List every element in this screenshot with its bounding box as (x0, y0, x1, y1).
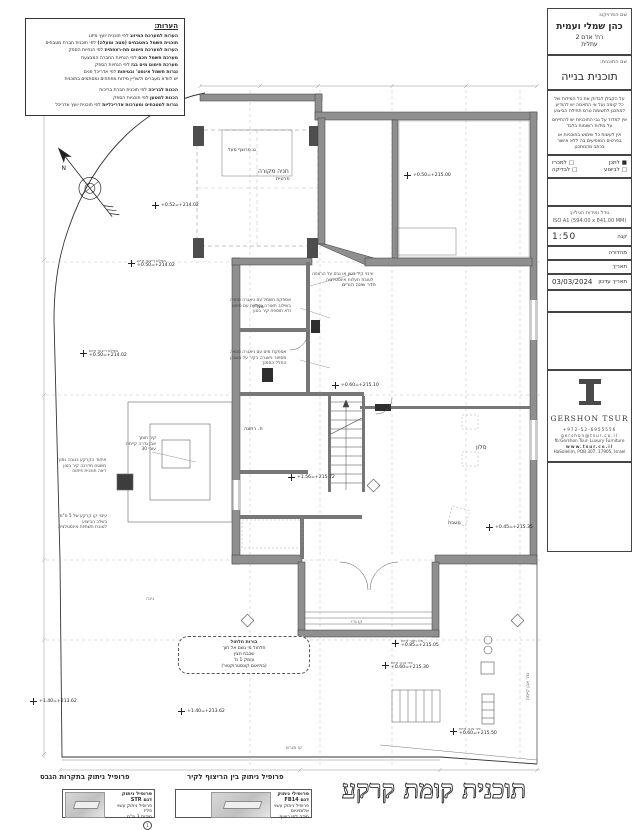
sheet-size-value: ISO A1 (594.00 x 841.00 MM) (552, 218, 627, 224)
sheet-title-text: תוכנית קומת קרקע (342, 775, 526, 804)
elevation-marker: +1.56=+215.72 (288, 474, 335, 481)
elevation-marker: +0.60=+215.10 (332, 382, 379, 389)
level-symbol-icon (392, 640, 399, 647)
updated-value: 03/03/2024 (552, 278, 592, 286)
facebook-line: fb:Gershon Tsur- Luxury Furniture (550, 438, 629, 444)
carport (193, 126, 320, 258)
north-arrow: N (48, 141, 122, 227)
disclaimer-2: אין למדוד על גבי התוכניות יש להתייחס על … (552, 118, 627, 130)
note-line: הערות למערכת חימום תת-רצפתית לפי הנחיות … (32, 47, 178, 54)
notes-title: הערות: (32, 22, 178, 30)
level-symbol-icon (382, 662, 389, 669)
checkbox-icon: □ (572, 167, 577, 173)
disclaimer-box: על הקבלן לבדוק את כל המידות של כל קומה ו… (547, 90, 632, 155)
sheet-size-box: גודל ומידות הגיליון: ISO A1 (594.00 x 84… (547, 206, 632, 228)
level-symbol-icon (128, 260, 135, 267)
room-label-carport-2: פרטית (276, 176, 290, 182)
project-info-box: שם הפרויקט: כהן שמלי ועמית רח' אדם 2 עתל… (547, 8, 632, 55)
checkbox-plan[interactable]: ■לתכן (609, 160, 627, 166)
level-symbol-icon (152, 202, 159, 209)
level-symbol-icon (80, 350, 87, 357)
sheet-size-label: גודל ומידות הגיליון: (552, 210, 627, 216)
checkbox-execution[interactable]: □לביצוע (604, 167, 627, 173)
planter-structure (117, 402, 232, 522)
room-label-garden: גינה (146, 596, 154, 602)
note-line: נגרות חשמל אינסט' ובטיחות לפי אדריכל פני… (32, 69, 178, 76)
elevation-marker: מפלס ריצוף קיים+0.50=+214.02 (128, 258, 175, 268)
detail-title-left: פרופיל ניתוק בתקרות הגבס (40, 773, 130, 781)
elevation-marker: +0.52=+214.02 (152, 202, 199, 209)
profile-photo (211, 792, 271, 818)
annotation: אספקת מים עם ניאגרה סמויהמסתור ניאגרה בק… (230, 350, 286, 367)
plan-name-box: שם התוכנית: תוכנית בנייה (547, 55, 632, 90)
entry-steps (305, 612, 432, 624)
elevation-marker: +1.40=+213.62 (178, 708, 225, 715)
level-symbol-icon (30, 698, 37, 705)
label-fence-line: קו גדר (350, 620, 362, 625)
postal-address: HaSolelim, POB 307, 17905, Israel (550, 449, 629, 455)
checkbox-tender[interactable]: □למכרז (552, 160, 574, 166)
scale-value: 1:50 (552, 232, 576, 242)
elevation-marker: פני גינה קיים+0.60=+215.50 (450, 726, 497, 736)
level-symbol-icon (178, 708, 185, 715)
checkbox-icon: ■ (622, 160, 627, 166)
elevation-marker: מפלס ריצוף קיים+0.50=+214.02 (80, 348, 127, 358)
elevation-marker: +0.50=+215.00 (404, 172, 451, 179)
notes-box: הערות: הערות למערכת המיזוג לפי תוכנית יו… (25, 18, 185, 116)
logo-box: GERSHON TSUR +972-52-6955556 gershon@tsu… (547, 370, 632, 462)
note-line: הערות למערכת המיזוג לפי תוכנית יועץ מיזו… (32, 33, 178, 40)
annotation: איחוד הקרקע בגובה נמוךמשטח מדרגה קיר בטו… (58, 458, 106, 475)
label-lot-line: קו מגרש (286, 746, 302, 751)
scale-label: קנה (617, 234, 627, 240)
patio-inner-line (399, 121, 529, 257)
plan-label: שם התוכנית: (552, 59, 627, 65)
elevation-marker: פני חצר קיים+0.85=+215.05 (392, 638, 439, 648)
note-line: הכנות לבריכה לפי תוכנית חברת בריכות (32, 87, 178, 94)
drainage-note-bubble: בורות חלחול חלחול מי גשם אל תוך שכבת חצץ… (178, 636, 310, 674)
note-line: מערכת חשמל חכם לפי הנחיות החברה המבצעת (32, 55, 178, 62)
note-line: תוכנית חשמל במטבחים (מטה ומעלה) לפי תוכנ… (32, 40, 178, 47)
project-name: כהן שמלי ועמית (552, 22, 627, 32)
empty-box (547, 290, 632, 312)
level-symbol-icon (332, 382, 339, 389)
floor-plan-drawing: N (0, 0, 634, 818)
edition-label: מהדורה (608, 250, 627, 256)
label-fence: גדר אבן קיימת (526, 673, 531, 700)
detail-ref-circle: 1 (143, 821, 152, 830)
checkbox-review[interactable]: □לבדיקה (552, 167, 577, 173)
staircase (331, 400, 362, 490)
date-box: תאריך (547, 260, 632, 274)
updated-box: תאריך עדכון 03/03/2024 (547, 274, 632, 290)
sheet-title: תוכנית קומת קרקע (324, 770, 544, 812)
title-block: שם הפרויקט: כהן שמלי ועמית רח' אדם 2 עתל… (547, 8, 632, 552)
level-symbol-icon (404, 172, 411, 179)
plan-name: תוכנית בנייה (552, 70, 627, 83)
level-symbol-icon (450, 728, 457, 735)
room-label-carport: חניה מקורה (258, 168, 289, 175)
elevation-marker: +0.45=+215.35 (486, 524, 533, 531)
note-line: מערכת חימום מים בגז לפי הנחיות הספק (32, 62, 178, 69)
checkbox-icon: □ (622, 167, 627, 173)
yard-fixtures (481, 636, 494, 724)
room-label-roof: גג מרוצף מעל (228, 148, 256, 153)
garden-steps (392, 690, 440, 722)
furniture-hints (242, 415, 478, 548)
profile-photo (65, 792, 105, 818)
note-line: יש לוודא מעברים ולשריין מידות מפתחים ומס… (32, 76, 178, 83)
room-label-kitchen: מטבח (448, 520, 461, 526)
elevation-marker: פני גינה קיים+0.60=+215.30 (382, 660, 429, 670)
level-symbol-icon (288, 474, 295, 481)
project-label: שם הפרויקט: (552, 12, 627, 18)
disclaimer-3: אין לעשות כל שימוש בתוכניות או בפרטים המ… (552, 133, 627, 151)
empty-box (547, 312, 632, 370)
updated-label: תאריך עדכון (598, 279, 627, 285)
drawing-sheet: { "title_block": { "project_label": "שם … (0, 0, 634, 818)
svg-text:N: N (62, 165, 67, 172)
elevation-marker: +1.40=+213.62 (30, 698, 77, 705)
detail-caption: פרופילי ניתוק דגם FB14 פרופיל ניתוק עשוי… (274, 792, 309, 815)
annotation: קיר תומךאבן גדרה קיימתעובי 30 (126, 436, 156, 453)
project-address: רח' אדם 2 עתלית (552, 34, 627, 48)
annotation: אספקת חשמל עם ניאגרה סמויהבשילוב תאורה נ… (230, 298, 291, 315)
detail-caption: פרופיל ניתוק דגם STR פרופיל ניתוק עשוי פ… (108, 792, 152, 815)
contact-info: +972-52-6955556 gershon@tsur.co.il fb:Ge… (550, 427, 629, 455)
empty-box (547, 178, 632, 206)
checkbox-icon: □ (569, 160, 574, 166)
level-symbol-icon (486, 524, 493, 531)
room-label-living: סלון (476, 444, 487, 451)
empty-box (547, 462, 632, 552)
logo-name: GERSHON TSUR (550, 414, 629, 423)
note-line: נגרות למטבחים ומערכות אדריכליות לפי תוכנ… (32, 102, 178, 109)
detail-title-right: פרופיל ניתוק בין הריצוף לקיר (187, 773, 284, 781)
date-label: תאריך (612, 264, 627, 270)
detail-card-str: פרופיל ניתוק דגם STR פרופיל ניתוק עשוי פ… (62, 789, 155, 818)
purpose-checkboxes: ■לתכן □למכרז □לביצוע □לבדיקה (547, 155, 632, 178)
annotation: עיבוי קיר בטון או גבס על הרצפהלטובת תעלו… (312, 272, 373, 283)
scale-box: קנה 1:50 (547, 228, 632, 246)
gershon-tsur-logo-icon (577, 377, 603, 407)
edition-box: מהדורה (547, 246, 632, 260)
annotation: עיבוי קו קרקע של 5 ס"מבשלב הביצועלטובת ת… (58, 514, 107, 531)
disclaimer-1: על הקבלן לבדוק את כל המידות של כל קומה ו… (552, 97, 627, 115)
note-line: הכנות למטען לפי תוכניות הספק (32, 95, 178, 102)
patio-planter (396, 228, 456, 255)
room-label-bath: ח. רחצה (244, 426, 263, 432)
detail-card-fb14: פרופילי ניתוק דגם FB14 פרופיל ניתוק עשוי… (175, 789, 312, 818)
